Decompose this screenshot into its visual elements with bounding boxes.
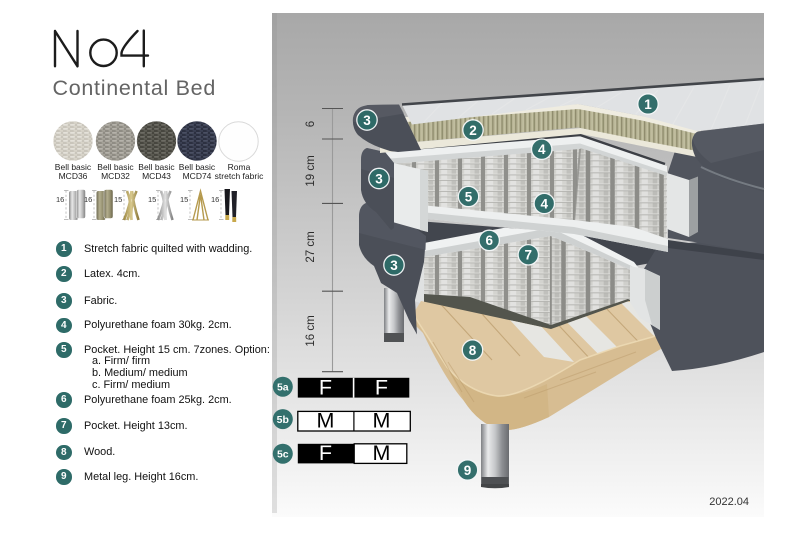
svg-text:M: M bbox=[317, 409, 335, 433]
svg-text:27 cm: 27 cm bbox=[305, 231, 317, 262]
svg-text:15: 15 bbox=[180, 195, 188, 204]
svg-text:6: 6 bbox=[485, 233, 493, 248]
svg-text:5b: 5b bbox=[277, 414, 289, 426]
svg-text:M: M bbox=[373, 441, 391, 465]
svg-text:16: 16 bbox=[211, 195, 219, 204]
svg-text:4: 4 bbox=[541, 196, 549, 211]
svg-text:F: F bbox=[375, 375, 388, 399]
svg-text:M: M bbox=[373, 409, 391, 433]
svg-text:6: 6 bbox=[305, 121, 317, 127]
svg-text:2: 2 bbox=[469, 123, 477, 138]
svg-text:F: F bbox=[319, 441, 332, 465]
svg-text:15: 15 bbox=[148, 195, 156, 204]
svg-text:15: 15 bbox=[114, 195, 122, 204]
svg-text:16: 16 bbox=[84, 195, 92, 204]
svg-text:9: 9 bbox=[464, 463, 472, 478]
svg-text:4: 4 bbox=[538, 142, 546, 157]
svg-text:3: 3 bbox=[363, 113, 371, 128]
svg-text:5c: 5c bbox=[277, 449, 289, 461]
svg-text:1: 1 bbox=[644, 97, 652, 112]
svg-text:3: 3 bbox=[390, 258, 398, 273]
svg-text:5: 5 bbox=[465, 189, 473, 204]
svg-text:2022.04: 2022.04 bbox=[709, 496, 749, 508]
svg-text:19 cm: 19 cm bbox=[305, 155, 317, 186]
svg-text:F: F bbox=[319, 375, 332, 399]
svg-text:3: 3 bbox=[375, 171, 383, 186]
svg-text:7: 7 bbox=[525, 248, 533, 263]
svg-text:16 cm: 16 cm bbox=[305, 315, 317, 346]
svg-text:5a: 5a bbox=[277, 382, 289, 394]
svg-text:16: 16 bbox=[56, 195, 64, 204]
svg-text:8: 8 bbox=[469, 343, 477, 358]
